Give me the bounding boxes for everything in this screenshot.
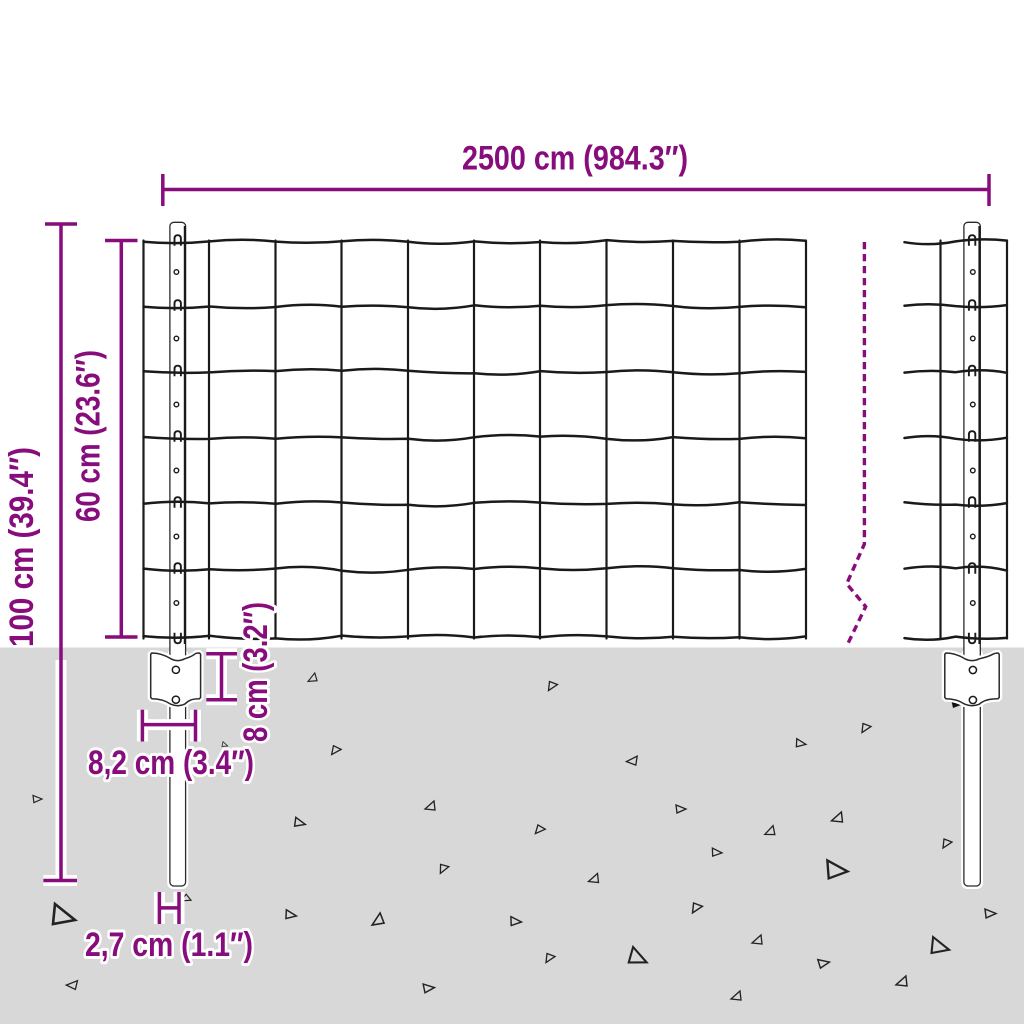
svg-text:8 cm (3.2″): 8 cm (3.2″) [237,602,275,742]
svg-text:2500 cm (984.3″): 2500 cm (984.3″) [462,140,688,178]
svg-text:8,2 cm (3.4″): 8,2 cm (3.4″) [88,744,254,782]
svg-text:60 cm (23.6″): 60 cm (23.6″) [70,350,108,522]
svg-text:2,7 cm (1.1″): 2,7 cm (1.1″) [85,926,253,964]
svg-text:100 cm (39.4″): 100 cm (39.4″) [3,447,41,647]
